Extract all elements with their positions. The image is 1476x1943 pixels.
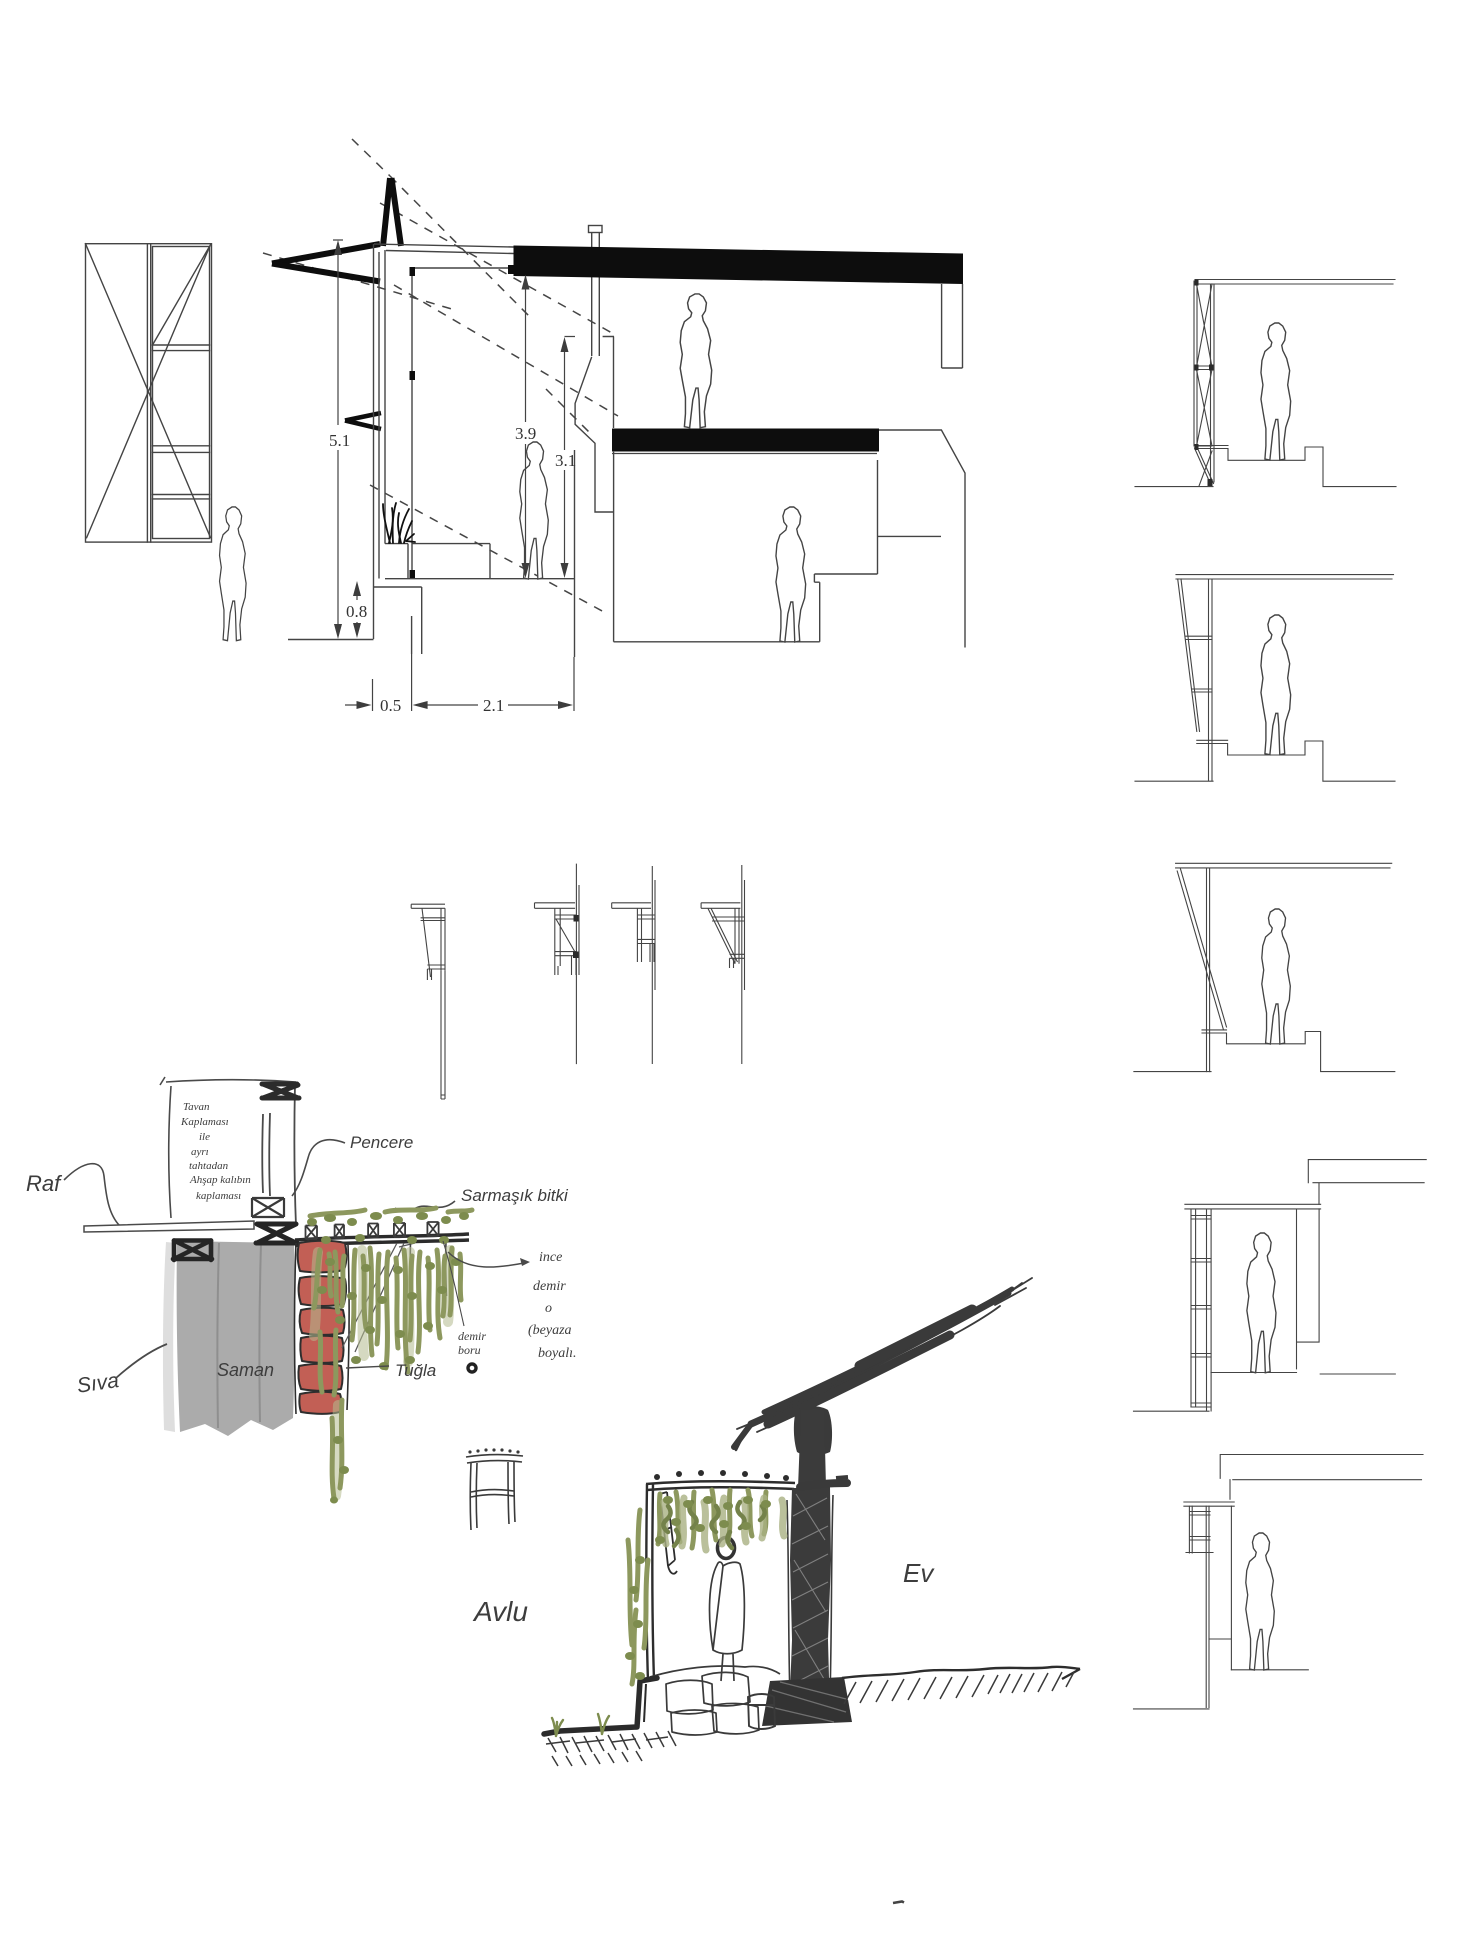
- svg-text:Tavan: Tavan: [183, 1101, 210, 1113]
- svg-text:demir: demir: [533, 1279, 566, 1294]
- svg-text:(beyaza: (beyaza: [528, 1323, 572, 1338]
- svg-text:tahtadan: tahtadan: [189, 1160, 229, 1172]
- svg-text:Ev: Ev: [903, 1558, 935, 1588]
- svg-text:0.8: 0.8: [346, 602, 367, 621]
- svg-text:kaplaması: kaplaması: [196, 1190, 241, 1202]
- svg-text:Kaplaması: Kaplaması: [180, 1116, 229, 1128]
- svg-text:boyalı.: boyalı.: [538, 1346, 577, 1361]
- svg-text:3.1: 3.1: [555, 451, 576, 470]
- svg-text:demir: demir: [458, 1329, 486, 1343]
- svg-text:o: o: [545, 1301, 552, 1316]
- svg-text:Pencere: Pencere: [350, 1133, 413, 1152]
- svg-text:boru: boru: [458, 1343, 481, 1357]
- svg-text:Tuğla: Tuğla: [395, 1361, 436, 1380]
- svg-text:Raf: Raf: [26, 1171, 63, 1196]
- svg-text:5.1: 5.1: [329, 431, 350, 450]
- svg-text:3.9: 3.9: [515, 424, 536, 443]
- svg-text:ayrı: ayrı: [191, 1146, 209, 1158]
- svg-text:2.1: 2.1: [483, 696, 504, 715]
- svg-text:ile: ile: [199, 1131, 210, 1143]
- svg-text:Sarmaşık bitki: Sarmaşık bitki: [461, 1186, 569, 1205]
- svg-text:Saman: Saman: [217, 1360, 274, 1380]
- svg-text:ince: ince: [539, 1250, 562, 1265]
- svg-text:Avlu: Avlu: [472, 1596, 528, 1627]
- svg-text:Ahşap kalıbın: Ahşap kalıbın: [189, 1174, 251, 1186]
- svg-text:0.5: 0.5: [380, 696, 401, 715]
